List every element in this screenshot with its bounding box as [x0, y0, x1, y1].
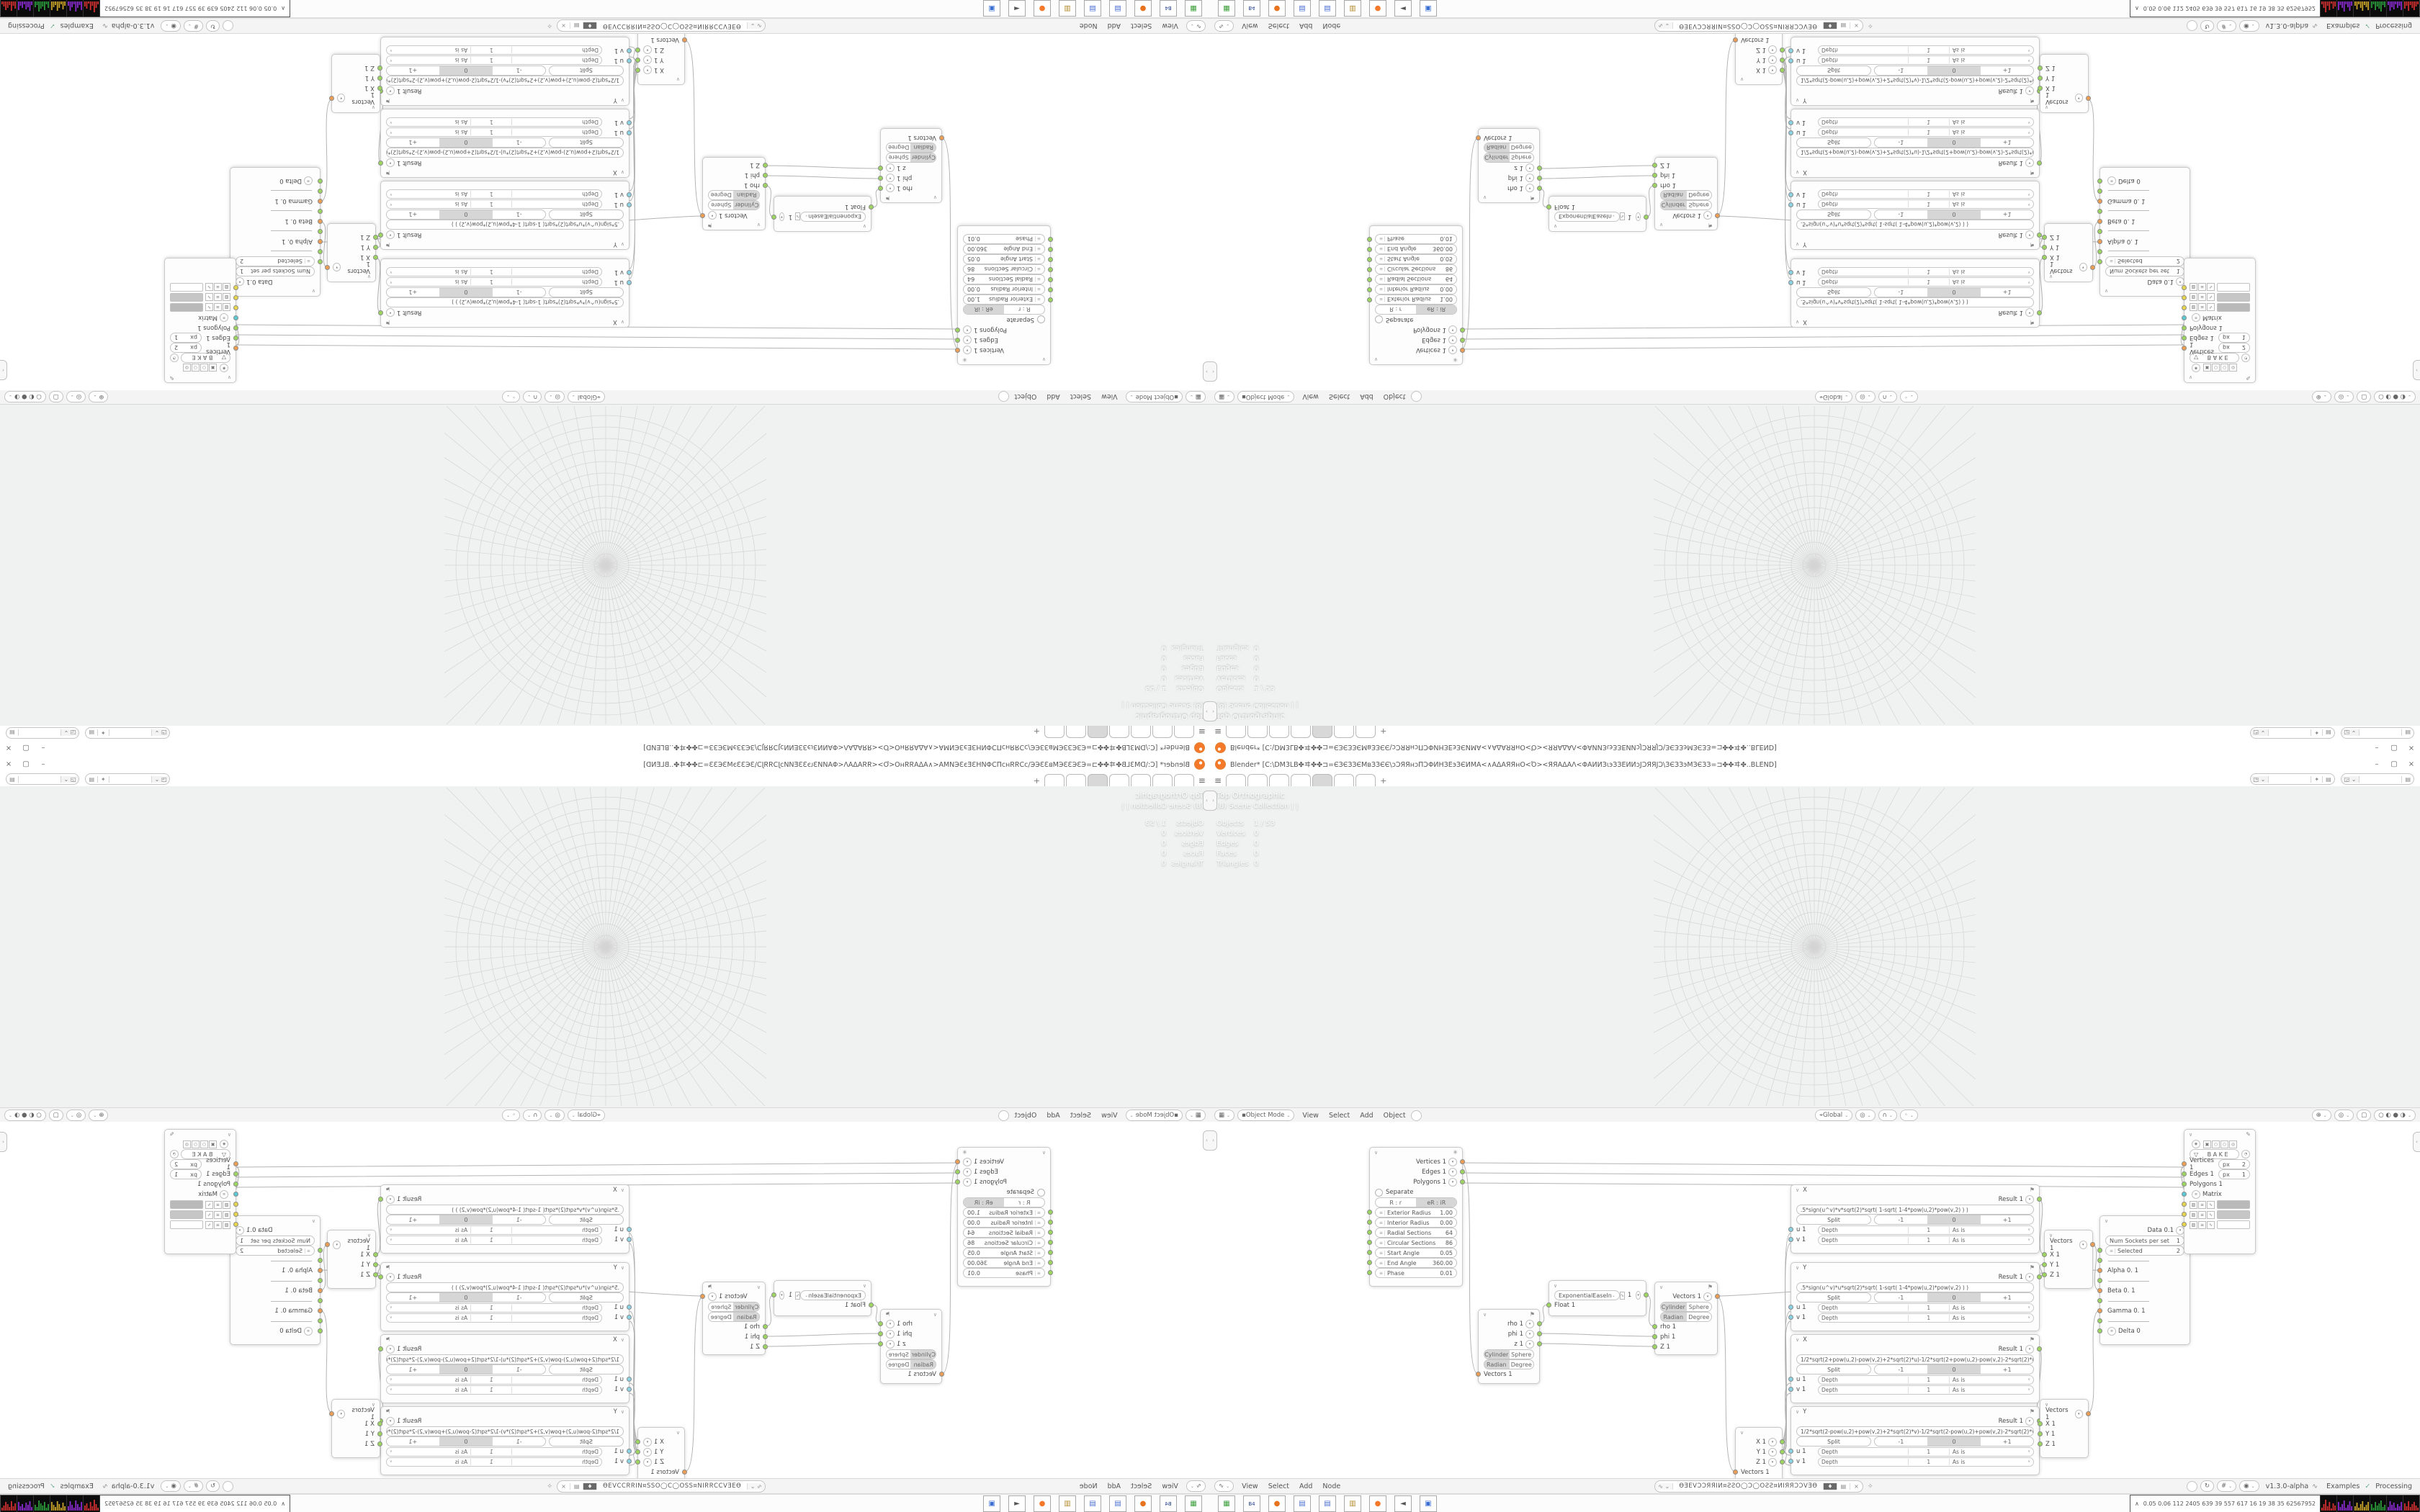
sverchok-tree-icon[interactable]: ∿ ⌄ [747, 1483, 765, 1490]
vertices-input-socket[interactable] [2182, 346, 2187, 351]
add-workspace-button[interactable]: + [1380, 776, 1386, 786]
u-input-socket[interactable] [627, 130, 632, 135]
split-button[interactable]: Split [1796, 138, 1871, 148]
window-icon[interactable]: ▣ [983, 0, 1000, 17]
stepper-icon[interactable]: ≡ [1379, 1210, 1385, 1215]
depth-dropdown[interactable]: Depth1As is∨ [1818, 1447, 2034, 1457]
result-output-socket[interactable] [378, 1274, 383, 1279]
split-button[interactable]: Split [549, 1436, 624, 1446]
object-mode-dropdown[interactable]: ▪ Object Mode⌄ [1237, 391, 1294, 402]
stepper-icon[interactable]: ≡ [1035, 1251, 1041, 1256]
wrap-option[interactable]: -1 [1875, 210, 1928, 219]
stepper-icon[interactable]: ≡ [1379, 1230, 1385, 1236]
menu-add[interactable]: Add [1294, 22, 1317, 30]
menu-node[interactable]: Node [1075, 1482, 1103, 1490]
torus-param-row[interactable]: ≡Interior Radius0.00 [958, 1218, 1050, 1228]
split-button[interactable]: Split [1796, 1364, 1871, 1374]
result-output-socket[interactable] [378, 233, 383, 238]
formula-field[interactable]: 1/2*sqrt(2-pow(u,2)+pow(v,2)+2*sqrt(2)*v… [386, 76, 624, 86]
stepper-icon[interactable]: ≡ [1379, 1261, 1385, 1266]
cylinder-sphere-segmented[interactable]: CylinderSphere [708, 1302, 760, 1312]
y-input-socket[interactable] [373, 1262, 378, 1267]
viewer-draw-node[interactable]: ∨✎ ◉▣○○◎ ▽B A K E◔ Vertices 1px2 Edges 1… [164, 258, 236, 383]
separate-toggle[interactable] [1375, 1189, 1383, 1197]
pin-icon[interactable]: ✧ [547, 1482, 552, 1490]
stepper-icon[interactable]: ≡ [1035, 1241, 1041, 1246]
separator-socket[interactable] [2097, 249, 2102, 254]
x-output-socket[interactable] [1780, 68, 1785, 73]
blank-toggle[interactable] [223, 1481, 233, 1492]
menu-hamburger-icon[interactable]: ≡ [1198, 726, 1206, 737]
menu-select[interactable]: Select [1324, 393, 1355, 401]
document-icon[interactable]: ▤ [1319, 1495, 1336, 1512]
view-layer-selector[interactable]: ◲ ⌄▤ [2341, 773, 2414, 785]
selected-input-socket[interactable] [318, 259, 323, 264]
z-output-socket[interactable] [1780, 48, 1785, 53]
number-field[interactable]: ≡Radial Sections64 [963, 274, 1045, 284]
depth-dropdown[interactable]: Depth1As is∨ [1818, 1236, 2034, 1245]
phi-output-socket[interactable] [878, 1331, 883, 1336]
vertices-input-socket[interactable] [233, 1161, 238, 1166]
floppy-disk-icon[interactable]: B4 [1243, 0, 1260, 17]
copy-icon[interactable]: ▤ [1837, 1483, 1850, 1490]
pin-icon[interactable]: ✦ [98, 730, 109, 737]
viewport-3d[interactable]: Top Orthographic (8) Scene Collection | … [0, 405, 1210, 726]
edge-color-socket[interactable] [233, 295, 238, 300]
torus-param-row[interactable]: ≡Circular Sections86 [1370, 264, 1462, 274]
torus-param-row[interactable]: ≡End Angle360.00 [1370, 1258, 1462, 1268]
depth-dropdown[interactable]: Depth1As is∨ [1818, 1457, 2034, 1467]
wrap-option[interactable]: +1 [1981, 210, 2033, 219]
param-input-socket[interactable] [1367, 287, 1372, 292]
stepper-icon[interactable]: ≡ [1035, 267, 1041, 272]
workspace-tab[interactable] [1066, 774, 1086, 786]
matrix-input-socket[interactable] [2182, 315, 2187, 320]
param-input-socket[interactable] [1048, 287, 1053, 292]
depth-dropdown[interactable]: Depth1As is∨ [386, 118, 602, 127]
document-icon[interactable]: ▤ [1084, 1495, 1101, 1512]
node-tree-selector[interactable]: ∿ ⌄ ƟƎEVƆƆЯЯIИ¤ƧƧO◯Ɔ◯OƧƧ¤ИIЯЯƆƆVƎƟ ♦ ▤ × [557, 20, 766, 32]
layout-grid-icon[interactable]: #⌄ [2217, 1480, 2236, 1492]
stepper-icon[interactable]: ≡ [304, 1327, 313, 1336]
polygons-output-socket[interactable] [955, 1179, 960, 1184]
menu-node[interactable]: Node [1075, 22, 1103, 30]
float-input-socket[interactable] [869, 204, 874, 210]
socket-menu-icon[interactable]: ▾ [2025, 1417, 2034, 1426]
workspace-tab[interactable] [1152, 774, 1173, 786]
stepper-icon[interactable]: ≡ [1035, 1271, 1041, 1276]
vectors-in-node[interactable]: ∨ Vectors 1▾ X 1 Y 1 Z 1 [331, 1399, 380, 1458]
wrap-option[interactable]: +1 [1981, 138, 2033, 147]
v-input-socket[interactable] [627, 1237, 632, 1242]
group-input-socket[interactable] [2097, 1308, 2102, 1313]
new-scene-icon[interactable]: ▤ [86, 776, 98, 783]
maximize-button[interactable]: ▢ [17, 757, 35, 770]
polygon-color-socket[interactable] [233, 1222, 238, 1227]
gear-icon[interactable]: ✳ [1453, 356, 1458, 363]
extra-icon[interactable]: ◔ [2241, 1150, 2250, 1158]
wrap-option[interactable]: -1 [1875, 66, 1928, 75]
search-button[interactable] [998, 392, 1009, 402]
wrap-option[interactable]: 0 [1928, 210, 1981, 219]
number-field[interactable]: ≡Radial Sections64 [1375, 1228, 1457, 1238]
x-input-socket[interactable] [377, 1421, 382, 1426]
torus-param-row[interactable]: ≡Start Angle0.05 [1370, 1248, 1462, 1258]
scene-selector[interactable]: ◳ ⌄✦▤ [2250, 773, 2335, 785]
socket-menu-icon[interactable]: ▾ [2025, 308, 2034, 317]
wrap-option[interactable]: 0 [439, 66, 493, 75]
workspace-tab[interactable] [1226, 774, 1246, 786]
vertices-output-socket[interactable] [955, 348, 960, 353]
activate-icon[interactable]: ◉ [220, 1140, 228, 1148]
depth-dropdown[interactable]: Depth1As is∨ [1818, 200, 2034, 210]
depth-dropdown[interactable]: Depth1As is∨ [386, 1457, 602, 1467]
viewer-draw-node[interactable]: ∨✎ ◉▣○○◎ ▽B A K E◔ Vertices 1px2 Edges 1… [2184, 1129, 2256, 1254]
speaker-icon[interactable]: ◄ [1008, 0, 1026, 17]
menu-view[interactable]: View [1297, 1112, 1324, 1120]
menu-select[interactable]: Select [1126, 22, 1157, 30]
split-button[interactable]: Split [549, 138, 624, 148]
number-field[interactable]: ≡Phase0.01 [1375, 1268, 1457, 1278]
toolbar-tab-handle[interactable]: › [1203, 701, 1210, 721]
shading-icon[interactable]: ◎ [2229, 1140, 2237, 1148]
depth-dropdown[interactable]: Depth1As is∨ [1818, 46, 2034, 55]
formula-node[interactable]: ∨Y⚑Result 1▾.5*sign(u^v)*u*sqrt(2)*sqrt(… [1791, 1262, 2040, 1331]
copy-icon[interactable]: ▤ [1837, 23, 1850, 30]
cylinder-sphere-segmented[interactable]: CylinderSphere [1660, 200, 1712, 210]
vectors-output-socket[interactable] [325, 1242, 330, 1247]
polygons-input-socket[interactable] [233, 325, 238, 330]
processing-toggle[interactable]: Processing [2370, 1482, 2417, 1490]
image-viewer-icon[interactable]: ▥ [1059, 0, 1076, 17]
wrap-segmented[interactable]: -10+1 [1874, 287, 2034, 297]
vector-polar-output-node[interactable]: ∨⚑ rho 1▾ phi 1▾ z 1▾ CylinderSphere Rad… [1478, 128, 1540, 203]
unlink-icon[interactable]: × [1850, 23, 1863, 30]
wrap-option[interactable]: -1 [492, 66, 545, 75]
selected-input-socket[interactable] [2097, 1248, 2102, 1253]
x-output-socket[interactable] [1780, 1439, 1785, 1444]
formula-field[interactable]: .5*sign(u^v)*v*sqrt(2)*sqrt( 1-sqrt( 1-4… [1796, 1205, 2034, 1215]
vertex-color-swatch[interactable] [2217, 1200, 2250, 1209]
u-input-socket[interactable] [1788, 1227, 1793, 1232]
examples-menu[interactable]: Examples [55, 22, 99, 30]
formula-node[interactable]: ∨X⚑Result 1▾.5*sign(u^v)*v*sqrt(2)*sqrt(… [1791, 1184, 2040, 1254]
overlays-dropdown[interactable]: ◎⌄ [66, 1110, 86, 1121]
param-input-socket[interactable] [1048, 267, 1053, 272]
edge-width-field[interactable]: px1 [170, 333, 202, 343]
node-toolbar-tab-handle[interactable]: › [1210, 361, 1217, 382]
add-workspace-button[interactable]: + [1380, 726, 1386, 736]
torus-mode-segmented[interactable]: R : reR : iR [1375, 1197, 1457, 1207]
floppy-disk-icon[interactable]: B4 [1160, 1495, 1177, 1512]
shading-mode-group[interactable]: ○ ◐ ● ◑⌄ [2374, 391, 2416, 402]
proportional-edit-toggle[interactable]: ◦⌄ [1900, 1110, 1918, 1121]
x-output-socket[interactable] [635, 1439, 640, 1444]
vector-polar-output-node[interactable]: ∨⚑ rho 1▾ phi 1▾ z 1▾ CylinderSphere Rad… [880, 1309, 942, 1384]
radian-degree-segmented[interactable]: RadianDegree [708, 190, 760, 200]
vectors-input-socket[interactable] [939, 135, 944, 140]
separator-socket[interactable] [2097, 1258, 2102, 1263]
depth-dropdown[interactable]: Depth1As is∨ [386, 1447, 602, 1457]
xray-toggle[interactable]: ▢ [49, 391, 63, 402]
pivot-point-dropdown[interactable]: ◎⌄ [1855, 391, 1875, 402]
z-output-socket[interactable] [1537, 1341, 1542, 1346]
socket-menu-icon[interactable]: ▾ [386, 1345, 395, 1354]
formula-field[interactable]: .5*sign(u^v)*u*sqrt(2)*sqrt( 1-sqrt( 1-4… [386, 1282, 624, 1292]
viewer-draw-node[interactable]: ∨✎ ◉▣○○◎ ▽B A K E◔ Vertices 1px2 Edges 1… [164, 1129, 236, 1254]
gizmo-dropdown[interactable]: ⊕⌄ [2312, 1110, 2331, 1121]
workspace-tab[interactable] [1131, 726, 1151, 738]
wrap-segmented[interactable]: -10+1 [1874, 210, 2034, 220]
wrap-segmented[interactable]: -10+1 [1874, 1436, 2034, 1446]
window-icon[interactable]: ▣ [1420, 0, 1437, 17]
wrap-option[interactable]: 0 [1928, 1293, 1981, 1302]
close-button[interactable]: × [0, 757, 17, 770]
depth-dropdown[interactable]: Depth1As is∨ [386, 200, 602, 210]
vector-out-node[interactable]: ∨ X 1▾ Y 1▾ Z 1▾ Vectors 1 [637, 34, 685, 85]
pivot-point-dropdown[interactable]: ◎⌄ [1855, 1110, 1875, 1121]
formula-field[interactable]: 1/2*sqrt(2+pow(u,2)-pow(v,2)+2*sqrt(2)*u… [1796, 1354, 2034, 1364]
layout-grid-icon[interactable]: #⌄ [184, 1480, 203, 1492]
torus-param-row[interactable]: ≡Phase0.01 [1370, 234, 1462, 244]
stepper-icon[interactable]: ≡ [1035, 297, 1041, 302]
search-button[interactable] [1411, 392, 1422, 402]
z-input-socket[interactable] [1652, 1344, 1657, 1349]
polygons-input-socket[interactable] [2182, 1182, 2187, 1187]
number-field[interactable]: ≡Circular Sections86 [1375, 264, 1457, 274]
depth-dropdown[interactable]: Depth1As is∨ [386, 1303, 602, 1313]
y-input-socket[interactable] [2042, 1262, 2047, 1267]
socket-menu-icon[interactable]: ▾ [1448, 1168, 1457, 1176]
torus-param-row[interactable]: ≡Phase0.01 [958, 234, 1050, 244]
pivot-point-dropdown[interactable]: ◎⌄ [544, 1110, 564, 1121]
scene-name-field[interactable] [109, 728, 151, 738]
group-input-socket[interactable] [318, 239, 323, 244]
menu-select[interactable]: Select [1263, 1482, 1294, 1490]
vectors-input-socket[interactable] [939, 1372, 944, 1377]
xray-toggle[interactable]: ▢ [2357, 391, 2371, 402]
transform-orientation-dropdown[interactable]: ⌖ Global⌄ [568, 1110, 605, 1121]
phi-input-socket[interactable] [1652, 1334, 1657, 1339]
easing-output-socket[interactable] [1644, 1292, 1649, 1297]
scene-name-field[interactable] [109, 774, 151, 784]
vertex-size-field[interactable]: px2 [170, 1159, 202, 1169]
rho-input-socket[interactable] [1652, 183, 1657, 188]
workspace-tab[interactable] [1088, 774, 1108, 786]
param-input-socket[interactable] [1048, 257, 1053, 262]
add-workspace-button[interactable]: + [1034, 776, 1040, 786]
sverchok-tree-icon[interactable]: ∿ ⌄ [1655, 1483, 1673, 1490]
workspace-tab[interactable] [1312, 726, 1332, 738]
vertex-color-swatch[interactable] [170, 303, 203, 312]
z-input-socket[interactable] [1652, 163, 1657, 168]
image-viewer-icon[interactable]: ▥ [1059, 1495, 1076, 1512]
refresh-icon[interactable]: ↻ [206, 1480, 220, 1492]
vectors-in-node[interactable]: ∨ Vectors 1▾ X 1 Y 1 Z 1 [331, 54, 380, 113]
workspace-tab[interactable] [1247, 726, 1268, 738]
socket-menu-icon[interactable]: ▾ [2025, 230, 2034, 239]
edges-input-socket[interactable] [2182, 336, 2187, 341]
socket-menu-icon[interactable]: ▾ [2025, 1195, 2034, 1204]
separator-socket[interactable] [318, 1318, 323, 1323]
vectors-in-node[interactable]: ∨ Vectors 1▾ X 1 Y 1 Z 1 [327, 1230, 376, 1289]
depth-dropdown[interactable]: Depth1As is∨ [1818, 1303, 2034, 1313]
vectors-input-socket[interactable] [1476, 1372, 1481, 1377]
image-viewer-icon[interactable]: ▥ [1344, 1495, 1361, 1512]
number-field[interactable]: ≡Interior Radius0.00 [963, 1218, 1045, 1228]
polygons-output-socket[interactable] [955, 328, 960, 333]
socket-menu-icon[interactable]: ▾ [1448, 336, 1457, 344]
workspace-tab[interactable] [1291, 774, 1311, 786]
pin-icon[interactable]: ✦ [2311, 776, 2322, 783]
overlays-dropdown[interactable]: ◎⌄ [2334, 1110, 2354, 1121]
examples-menu[interactable]: Examples [55, 1482, 99, 1490]
transform-orientation-dropdown[interactable]: ⌖ Global⌄ [1815, 1110, 1852, 1121]
scene-name-field[interactable] [2269, 774, 2311, 784]
wrap-option[interactable]: 0 [1928, 1365, 1981, 1374]
vertex-color-socket[interactable] [2182, 1202, 2187, 1207]
wrap-option[interactable]: -1 [1875, 1293, 1928, 1302]
number-field[interactable]: ≡End Angle360.00 [1375, 244, 1457, 254]
node-tree-selector[interactable]: ∿ ⌄ ƟƎEVƆƆЯЯIИ¤ƧƧO◯Ɔ◯OƧƧ¤ИIЯЯƆƆVƎƟ ♦ ▤ × [557, 1480, 766, 1493]
split-button[interactable]: Split [549, 66, 624, 76]
editor-type-3d-icon[interactable]: ▦⌄ [1214, 391, 1234, 402]
editor-type-node-icon[interactable]: ∿⌄ [1214, 1480, 1234, 1492]
number-field[interactable]: ≡End Angle360.00 [963, 244, 1045, 254]
result-output-socket[interactable] [2037, 161, 2042, 166]
stepper-icon[interactable]: ≡ [1379, 257, 1385, 262]
display-faces-icon[interactable]: ○ [192, 1140, 200, 1148]
x-input-socket[interactable] [373, 255, 378, 260]
group-input-socket[interactable] [2097, 239, 2102, 244]
activate-icon[interactable]: ◉ [2192, 364, 2200, 372]
easing-node[interactable]: ∨ ExponentialEaseIn⌄∿1▾ Float 1 [1549, 196, 1646, 232]
new-scene-icon[interactable]: ▤ [86, 730, 98, 737]
x-input-socket[interactable] [373, 1252, 378, 1257]
param-input-socket[interactable] [1048, 1210, 1053, 1215]
edges-output-socket[interactable] [1460, 1169, 1465, 1174]
gear-icon[interactable]: ✳ [962, 1149, 967, 1156]
z-input-socket[interactable] [373, 1272, 378, 1277]
pin-icon[interactable]: ✧ [1868, 22, 1873, 30]
torus-param-row[interactable]: ≡Interior Radius0.00 [1370, 284, 1462, 294]
number-field[interactable]: ≡Circular Sections86 [1375, 1238, 1457, 1248]
z-output-socket[interactable] [878, 166, 883, 171]
torus-param-row[interactable]: ≡Start Angle0.05 [958, 1248, 1050, 1258]
display-edges-icon[interactable]: ○ [200, 364, 208, 372]
wrap-option[interactable]: -1 [1875, 1215, 1928, 1224]
formula-field[interactable]: .5*sign(u^v)*u*sqrt(2)*sqrt( 1-sqrt( 1-4… [1796, 1282, 2034, 1292]
number-field[interactable]: ≡Exterior Radius1.00 [963, 1207, 1045, 1218]
sidebar-tab-handle[interactable]: ‹ [0, 1132, 7, 1152]
menu-hamburger-icon[interactable]: ≡ [1214, 775, 1222, 786]
edge-color-socket[interactable] [2182, 295, 2187, 300]
curve-preview-icon[interactable]: ∿ [1620, 1292, 1625, 1300]
browser-icon[interactable]: ● [1268, 0, 1286, 17]
wrap-option[interactable]: +1 [1981, 1437, 2033, 1446]
matrix-input-socket[interactable] [2182, 1192, 2187, 1197]
vectors-input-socket[interactable] [682, 1470, 687, 1475]
floppy-disk-icon[interactable]: B4 [1160, 0, 1177, 17]
split-button[interactable]: Split [549, 210, 624, 220]
node-toolbar-tab-handle[interactable]: › [1203, 361, 1210, 382]
node-tree-name[interactable]: ƟƎEVƆƆЯЯIИ¤ƧƧO◯Ɔ◯OƧƧ¤ИIЯЯƆƆVƎƟ [1673, 22, 1823, 30]
socket-menu-icon[interactable]: ▾ [2025, 86, 2034, 95]
param-input-socket[interactable] [1367, 1240, 1372, 1245]
menu-add[interactable]: Add [1041, 393, 1065, 401]
radian-degree-segmented[interactable]: RadianDegree [1484, 143, 1534, 153]
vectors-in-node[interactable]: ∨ Vectors 1▾ X 1 Y 1 Z 1 [2044, 1230, 2093, 1289]
param-input-socket[interactable] [1367, 1220, 1372, 1225]
group-input-socket[interactable] [318, 219, 323, 224]
menu-add[interactable]: Add [1041, 1112, 1065, 1120]
node-tree-name[interactable]: ƟƎEVƆƆЯЯIИ¤ƧƧO◯Ɔ◯OƧƧ¤ИIЯЯƆƆVƎƟ [597, 22, 747, 30]
depth-dropdown[interactable]: Depth1As is∨ [386, 268, 602, 277]
proportional-edit-toggle[interactable]: ◦⌄ [1900, 391, 1918, 402]
display-faces-icon[interactable]: ○ [2220, 1140, 2228, 1148]
formula-node[interactable]: ∨X⚑Result 1▾1/2*sqrt(2+pow(u,2)-pow(v,2)… [1791, 1334, 2040, 1403]
number-field[interactable]: ≡Start Angle0.05 [963, 254, 1045, 264]
formula-field[interactable]: .5*sign(u^v)*v*sqrt(2)*sqrt( 1-sqrt( 1-4… [386, 297, 624, 307]
x-input-socket[interactable] [2042, 1252, 2047, 1257]
minimize-button[interactable]: – [2368, 757, 2385, 770]
v-input-socket[interactable] [1788, 270, 1793, 275]
u-input-socket[interactable] [1788, 1449, 1793, 1454]
socket-menu-icon[interactable]: ▾ [386, 86, 395, 95]
stepper-icon[interactable]: ≡ [304, 176, 313, 185]
param-input-socket[interactable] [1367, 1270, 1372, 1275]
socket-menu-icon[interactable]: ▾ [386, 158, 395, 167]
u-input-socket[interactable] [627, 1227, 632, 1232]
depth-dropdown[interactable]: Depth1As is∨ [386, 1225, 602, 1235]
window-icon[interactable]: ▣ [1420, 1495, 1437, 1512]
workspace-tab[interactable] [1291, 726, 1311, 738]
menu-hamburger-icon[interactable]: ≡ [1198, 775, 1206, 786]
wrap-option[interactable]: 0 [439, 138, 493, 147]
torus-mode-segmented[interactable]: R : reR : iR [963, 305, 1045, 315]
workspace-tab[interactable] [1226, 726, 1246, 738]
u-input-socket[interactable] [627, 1377, 632, 1382]
num-sockets-field[interactable]: Num Sockets per set1 [236, 1236, 315, 1246]
formula-node[interactable]: ∨X⚑Result 1▾.5*sign(u^v)*v*sqrt(2)*sqrt(… [380, 1184, 629, 1254]
rho-input-socket[interactable] [763, 1324, 768, 1329]
number-field[interactable]: ≡Exterior Radius1.00 [1375, 1207, 1457, 1218]
display-vertices-icon[interactable]: ▣ [209, 1140, 217, 1148]
float-input-socket[interactable] [1546, 1302, 1551, 1308]
xray-toggle[interactable]: ▢ [49, 1110, 63, 1121]
viewport-3d[interactable]: Top Orthographic (8) Scene Collection | … [0, 786, 1210, 1107]
workspace-tab[interactable] [1355, 774, 1376, 786]
result-output-socket[interactable] [378, 161, 383, 166]
wrap-option[interactable]: 0 [1928, 138, 1981, 147]
activate-icon[interactable]: ◉ [2192, 1140, 2200, 1148]
minimize-button[interactable]: – [35, 742, 52, 755]
edge-width-field[interactable]: px1 [170, 1169, 202, 1179]
speaker-icon[interactable]: ◄ [1394, 0, 1412, 17]
depth-dropdown[interactable]: Depth1As is∨ [386, 1385, 602, 1395]
wrap-segmented[interactable]: -10+1 [386, 138, 546, 148]
vertex-size-field[interactable]: px2 [2218, 1159, 2250, 1169]
number-field[interactable]: ≡Start Angle0.05 [1375, 254, 1457, 264]
param-input-socket[interactable] [1367, 1230, 1372, 1235]
formula-field[interactable]: .5*sign(u^v)*v*sqrt(2)*sqrt( 1-sqrt( 1-4… [1796, 297, 2034, 307]
depth-dropdown[interactable]: Depth1As is∨ [1818, 1225, 2034, 1235]
wrap-option[interactable]: +1 [387, 1437, 439, 1446]
torus-param-row[interactable]: ≡Radial Sections64 [1370, 274, 1462, 284]
browser-icon[interactable]: ● [1268, 1495, 1286, 1512]
y-input-socket[interactable] [2038, 1431, 2043, 1436]
socket-menu-icon[interactable]: ▾ [1448, 346, 1457, 354]
